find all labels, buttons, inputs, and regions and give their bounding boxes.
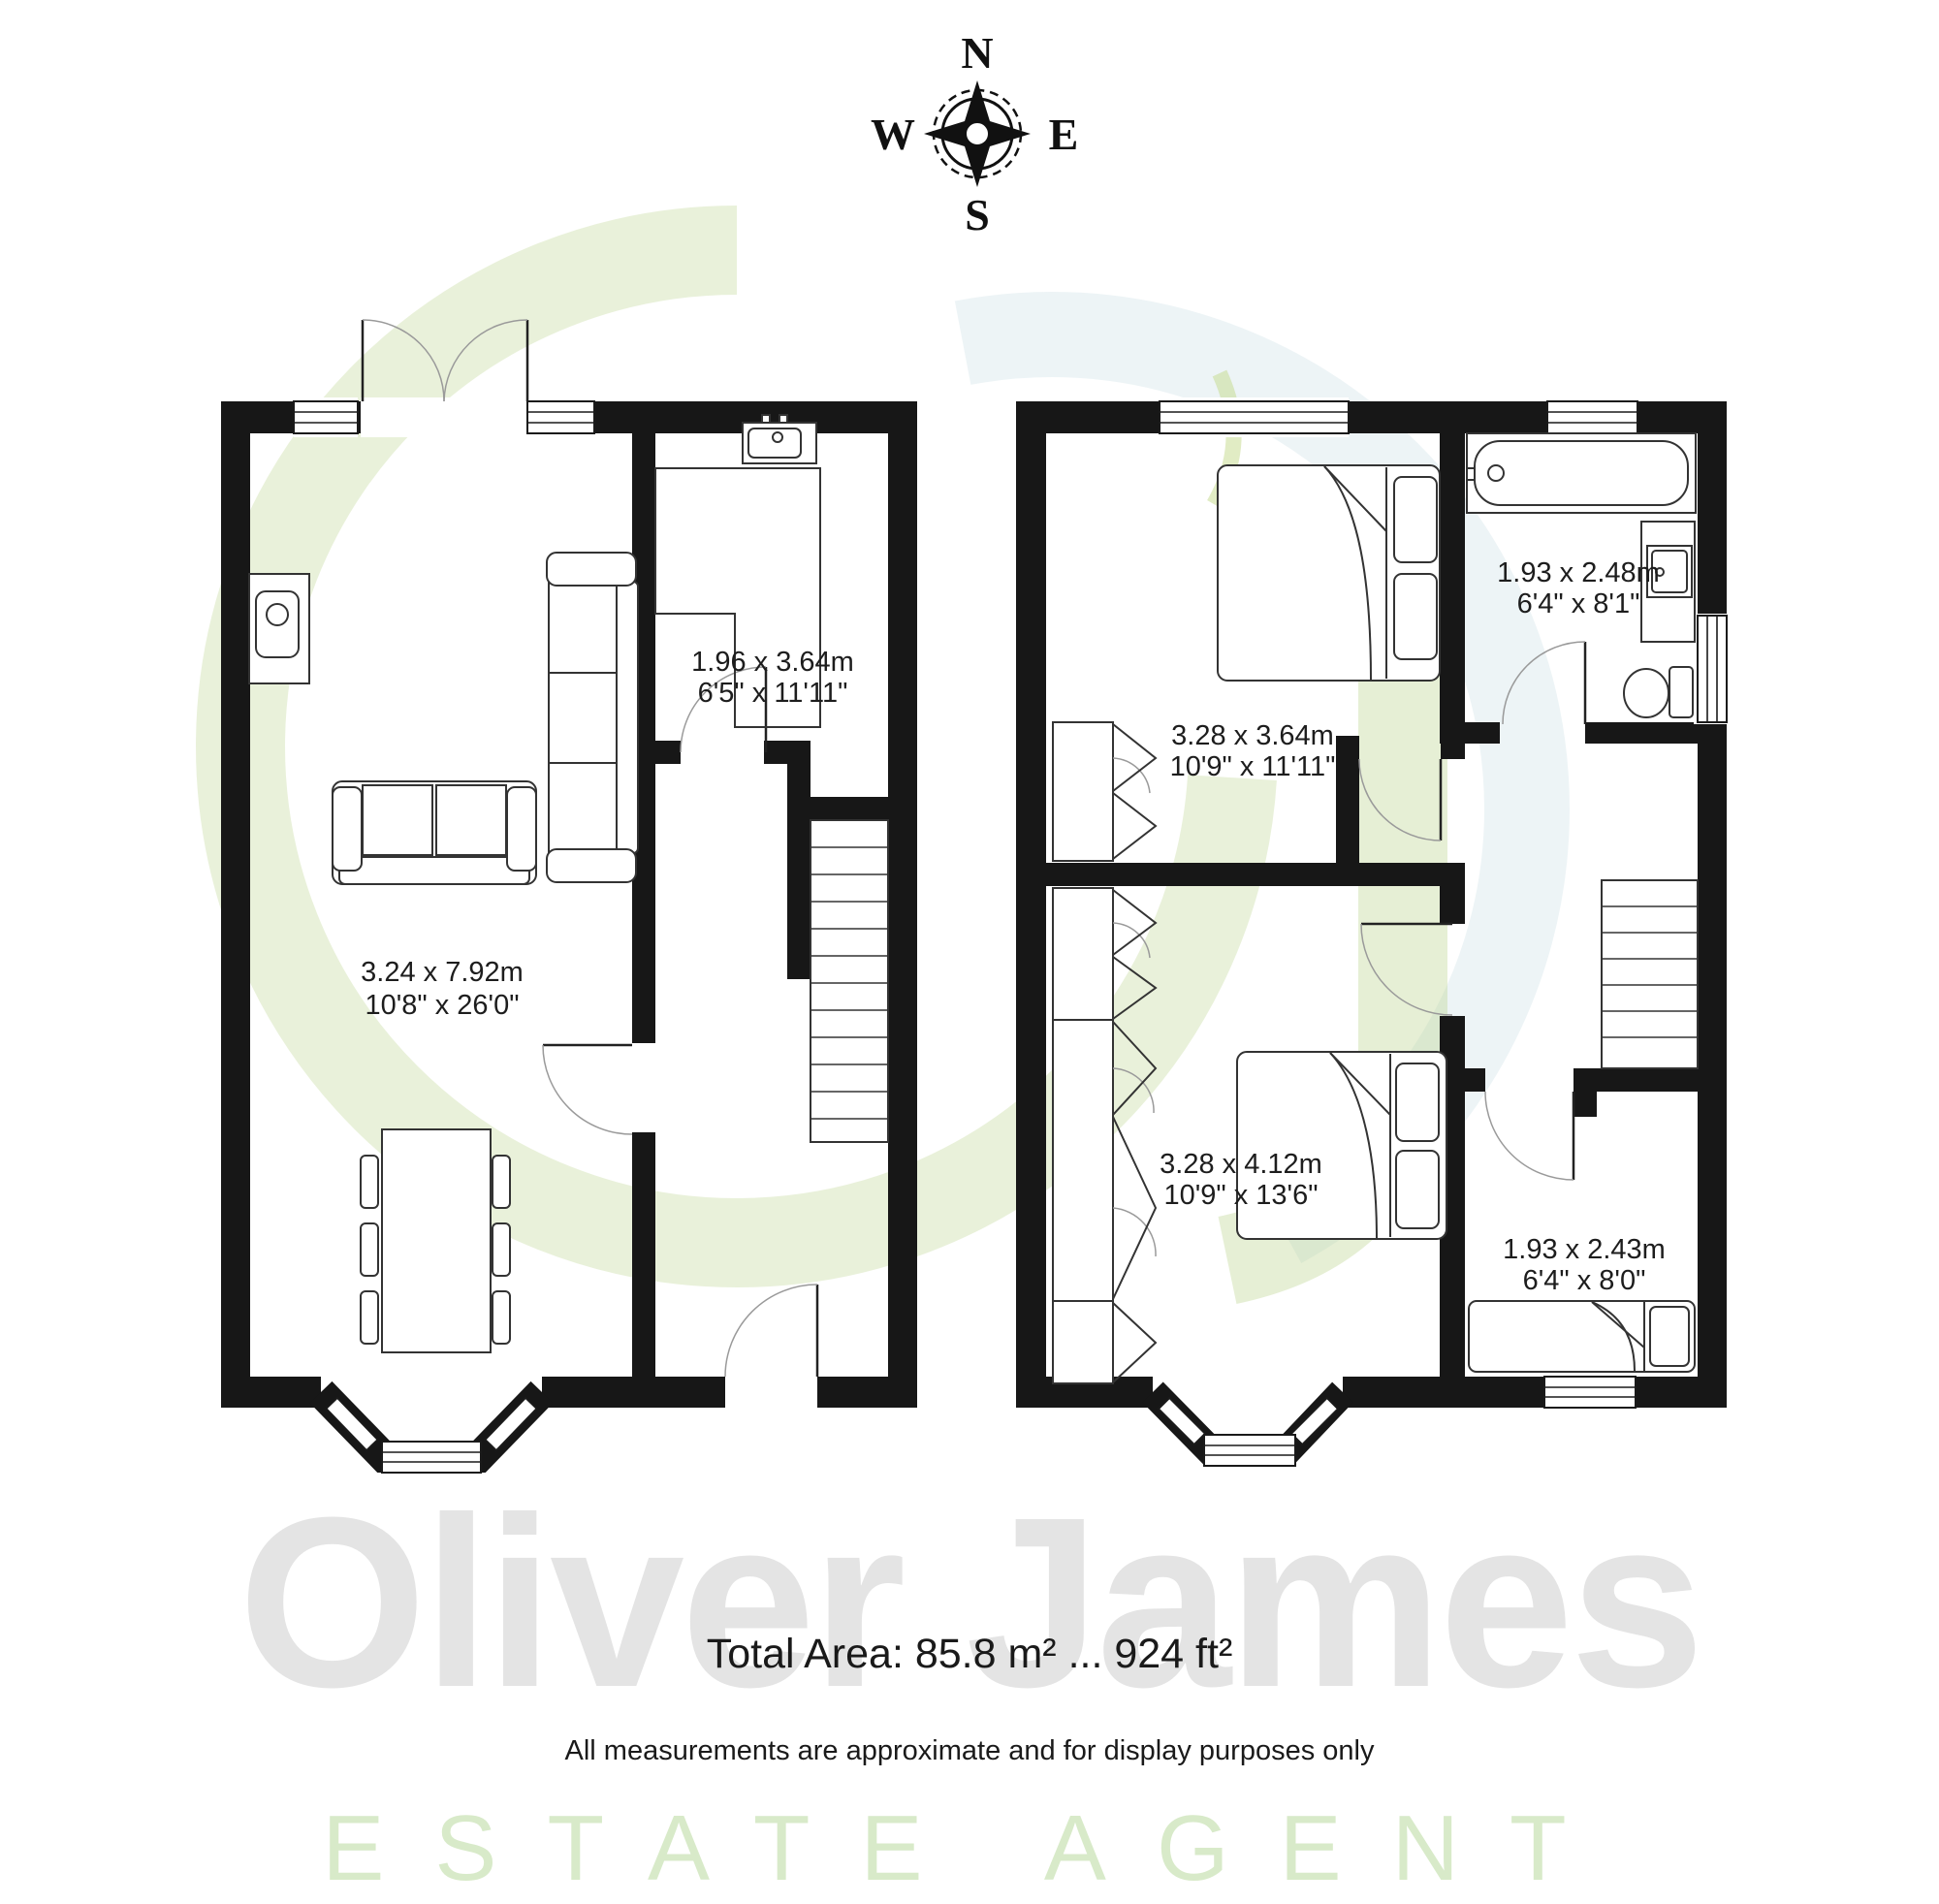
- window: [527, 401, 594, 433]
- window: [1547, 401, 1637, 433]
- compass-south: S: [965, 190, 990, 239]
- window: [1544, 1377, 1636, 1408]
- window: [1698, 616, 1727, 722]
- sofa-two-seat: [333, 781, 536, 884]
- dining-table: [361, 1129, 510, 1352]
- bathroom-size-imperial: 6'4" x 8'1": [1517, 588, 1640, 619]
- single-bed-bedroom3: [1469, 1301, 1695, 1372]
- kitchen-size-imperial: 6'5" x 11'11": [698, 678, 848, 709]
- compass-west: W: [871, 110, 915, 159]
- toilet: [1624, 667, 1693, 717]
- living-room-size-imperial: 10'8" x 26'0": [365, 990, 519, 1021]
- bedroom2-size-metric: 3.28 x 4.12m: [1160, 1149, 1322, 1180]
- bedroom2-size-imperial: 10'9" x 13'6": [1163, 1180, 1318, 1211]
- compass-north: N: [961, 28, 993, 78]
- window: [1160, 401, 1349, 433]
- compass-east: E: [1049, 110, 1079, 159]
- bedroom1-size-metric: 3.28 x 3.64m: [1171, 720, 1334, 751]
- floor-plan-drawing: N S W E: [0, 0, 1939, 1904]
- bedroom1-size-imperial: 10'9" x 11'11": [1170, 751, 1336, 782]
- sofa-three-seat: [547, 553, 638, 882]
- floorplan-page: Oliver James ESTATE AGENT N S W E: [0, 0, 1939, 1904]
- disclaimer-text: All measurements are approximate and for…: [0, 1735, 1939, 1767]
- bathtub: [1467, 433, 1696, 513]
- living-room-size-metric: 3.24 x 7.92m: [361, 957, 524, 988]
- kitchen-size-metric: 1.96 x 3.64m: [691, 647, 854, 678]
- double-bed-bedroom1: [1218, 465, 1440, 681]
- stairs: [1602, 880, 1698, 1068]
- bedroom3-size-metric: 1.93 x 2.43m: [1503, 1234, 1666, 1265]
- stairs: [811, 820, 888, 1142]
- compass-rose: N S W E: [871, 28, 1078, 239]
- double-bed-bedroom2: [1237, 1052, 1446, 1239]
- bathroom-size-metric: 1.93 x 2.48m: [1497, 557, 1660, 588]
- total-area-text: Total Area: 85.8 m² ... 924 ft²: [0, 1631, 1939, 1678]
- bedroom3-size-imperial: 6'4" x 8'0": [1523, 1265, 1646, 1296]
- fireplace: [249, 574, 309, 683]
- fitted-wardrobes: [1053, 722, 1156, 1383]
- window: [294, 401, 358, 433]
